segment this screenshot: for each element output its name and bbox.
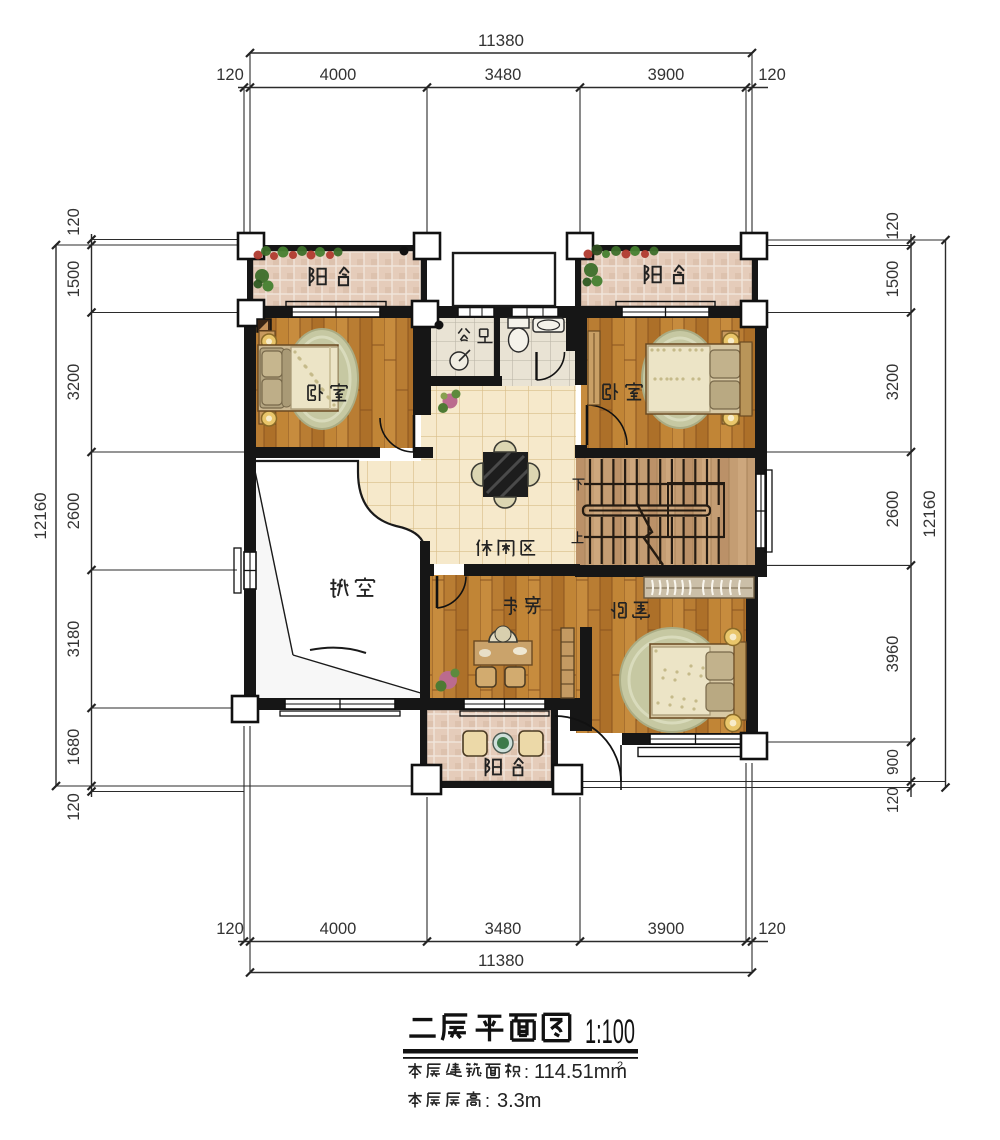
svg-text:3200: 3200 bbox=[884, 364, 902, 401]
svg-text:11380: 11380 bbox=[478, 951, 524, 970]
svg-text:1500: 1500 bbox=[65, 261, 83, 298]
svg-text:120: 120 bbox=[65, 793, 83, 821]
svg-text:120: 120 bbox=[758, 920, 786, 938]
svg-text:3900: 3900 bbox=[648, 920, 685, 938]
svg-text:120: 120 bbox=[758, 66, 786, 84]
svg-text:3960: 3960 bbox=[884, 636, 902, 673]
svg-text:3.3m: 3.3m bbox=[497, 1090, 541, 1112]
svg-text:120: 120 bbox=[884, 212, 902, 240]
svg-text:3480: 3480 bbox=[485, 920, 522, 938]
svg-text:114.51mm: 114.51mm bbox=[534, 1061, 627, 1083]
svg-text:4000: 4000 bbox=[320, 66, 357, 84]
svg-text::: : bbox=[524, 1062, 529, 1082]
svg-text:1500: 1500 bbox=[884, 261, 902, 298]
svg-text:900: 900 bbox=[885, 749, 902, 775]
svg-text:3180: 3180 bbox=[65, 621, 83, 658]
svg-text:120: 120 bbox=[65, 208, 83, 236]
svg-text:2: 2 bbox=[617, 1060, 623, 1072]
svg-text:2600: 2600 bbox=[65, 493, 83, 530]
svg-text:2600: 2600 bbox=[884, 491, 902, 528]
svg-text:3480: 3480 bbox=[485, 66, 522, 84]
svg-text:3200: 3200 bbox=[65, 364, 83, 401]
svg-text:11380: 11380 bbox=[478, 31, 524, 50]
svg-text:12160: 12160 bbox=[920, 490, 939, 537]
svg-text:1680: 1680 bbox=[65, 729, 83, 766]
svg-text:12160: 12160 bbox=[31, 492, 50, 539]
svg-text::: : bbox=[485, 1091, 490, 1111]
svg-text:120: 120 bbox=[216, 920, 244, 938]
svg-text:4000: 4000 bbox=[320, 920, 357, 938]
svg-text:120: 120 bbox=[885, 787, 902, 813]
svg-text:3900: 3900 bbox=[648, 66, 685, 84]
svg-text:1:100: 1:100 bbox=[585, 1013, 635, 1051]
svg-text:120: 120 bbox=[216, 66, 244, 84]
